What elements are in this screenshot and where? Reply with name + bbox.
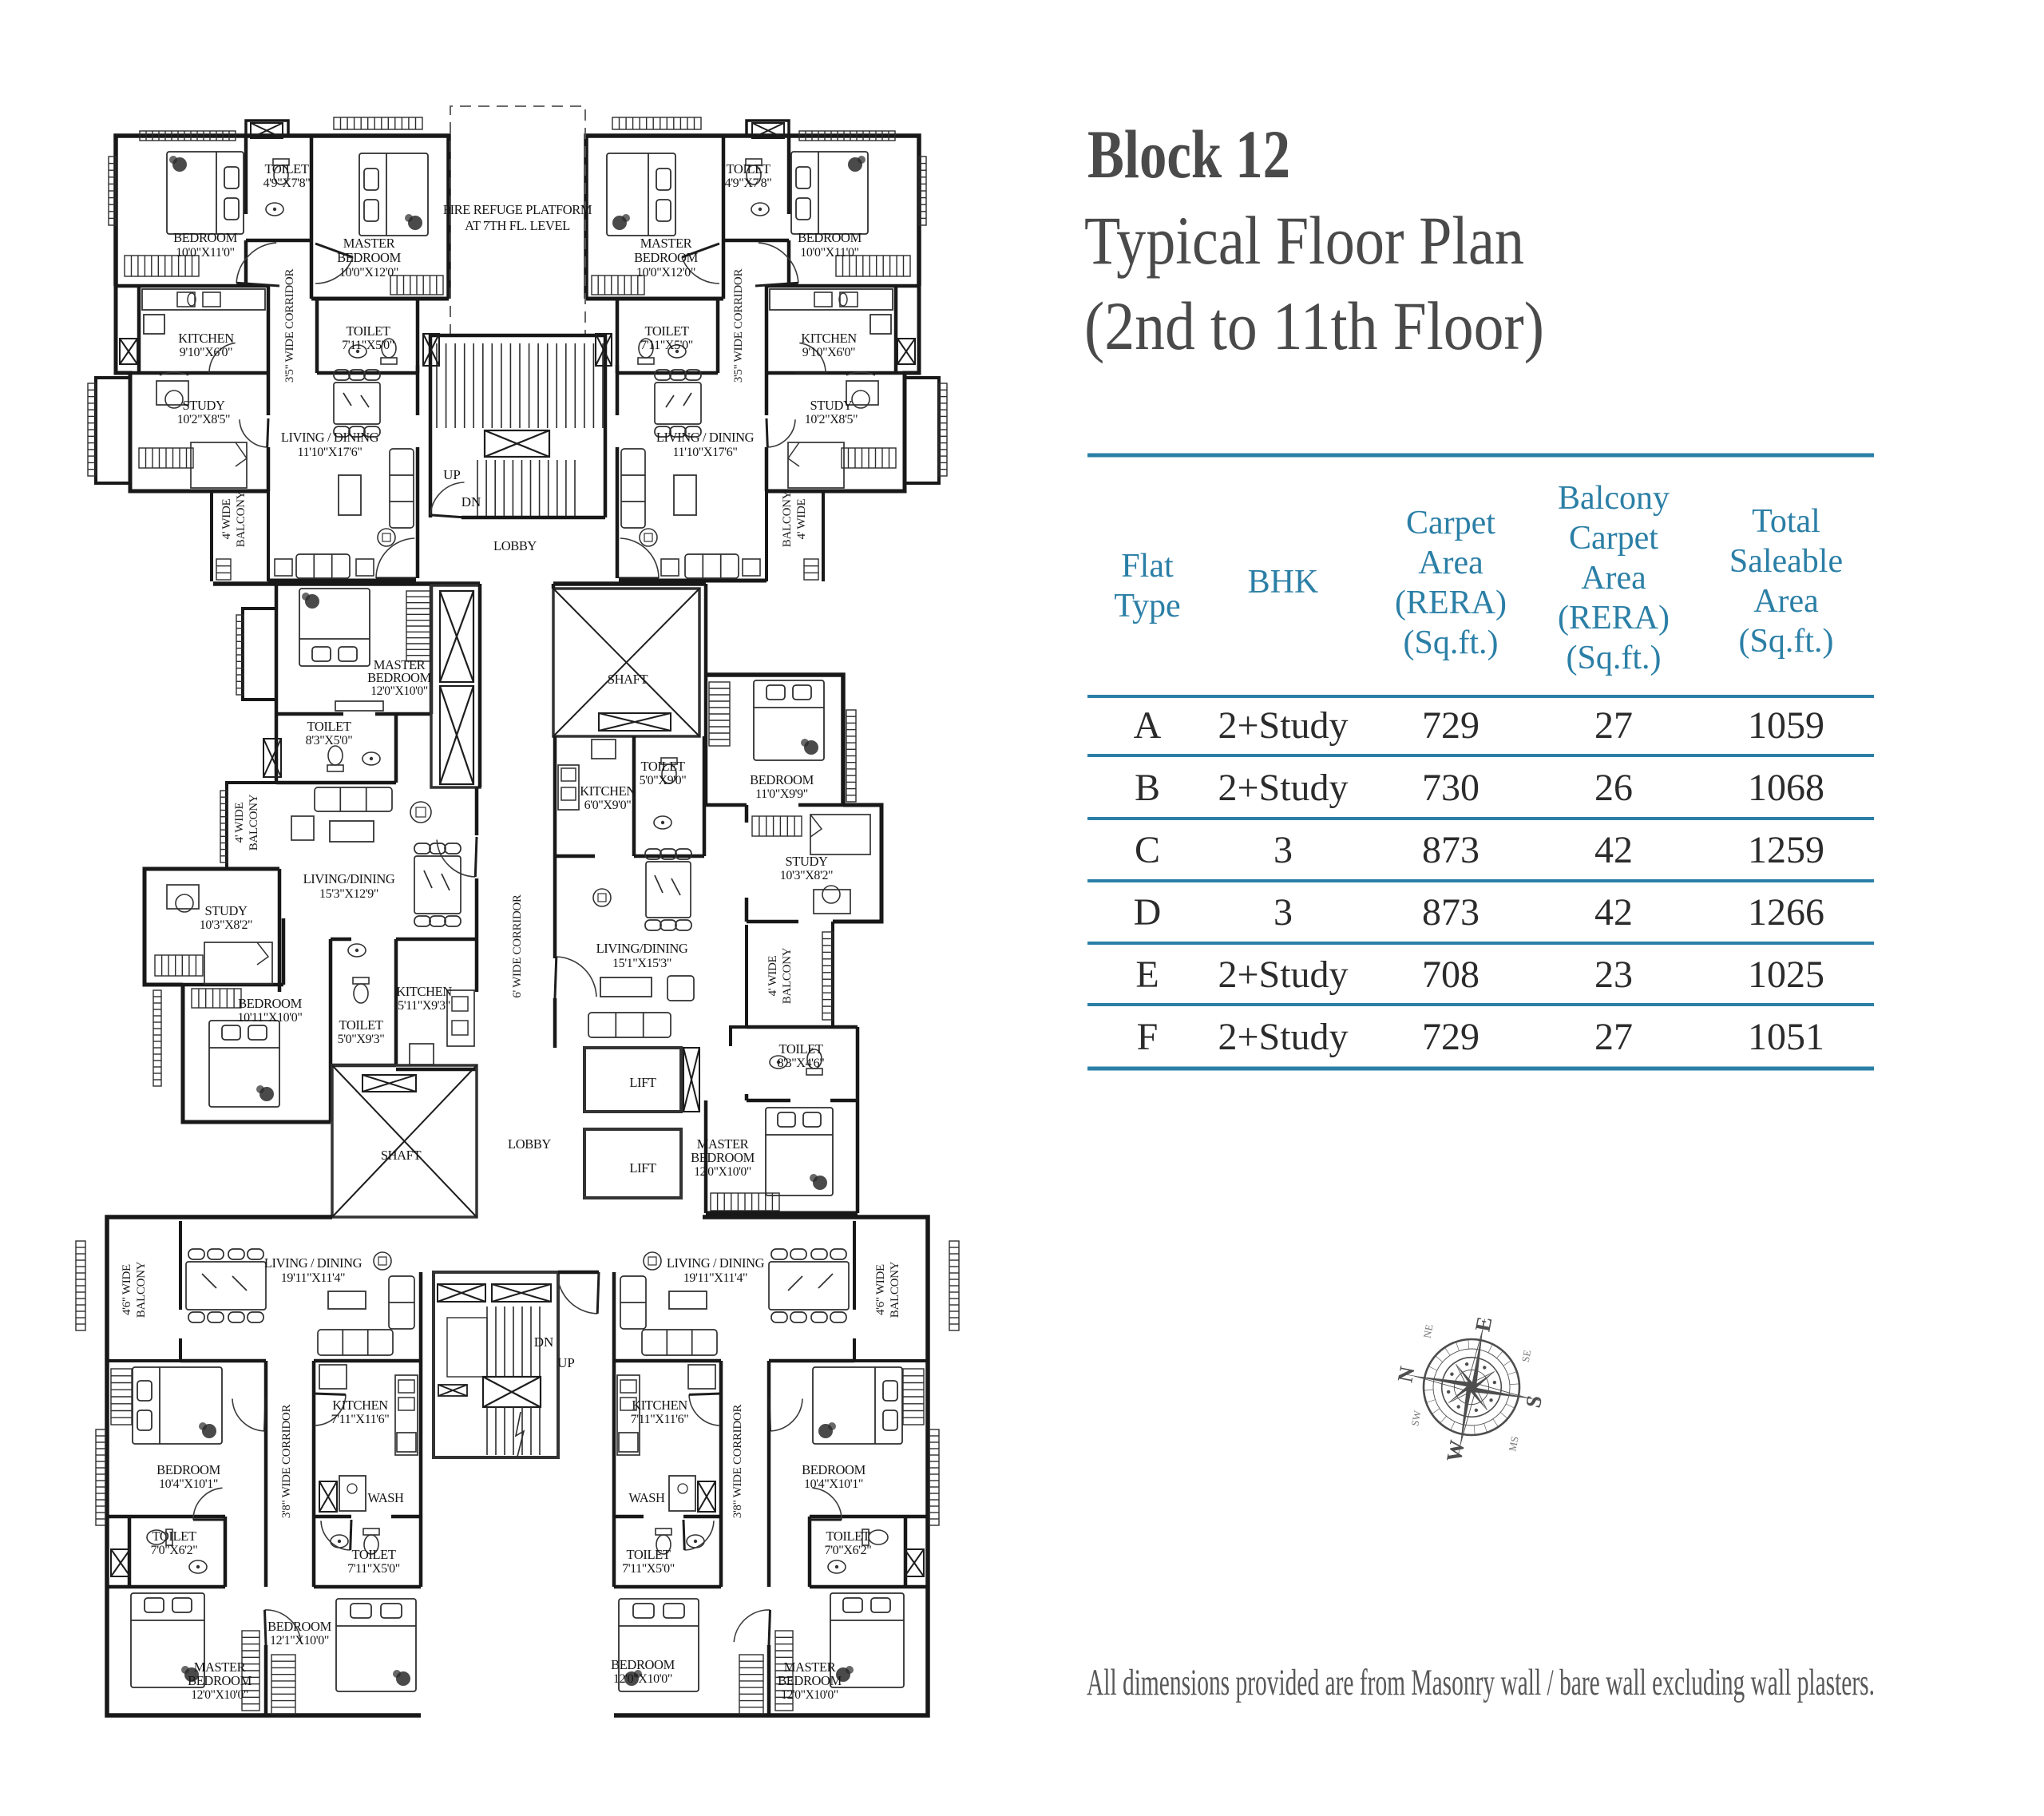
- svg-text:BEDROOM: BEDROOM: [691, 1150, 755, 1165]
- svg-text:9'10"X6'0": 9'10"X6'0": [802, 346, 855, 359]
- svg-text:3: 3: [1274, 891, 1293, 934]
- svg-text:4'9"X7'8": 4'9"X7'8": [263, 176, 311, 190]
- svg-text:TOILET: TOILET: [826, 1529, 869, 1544]
- svg-text:MASTER: MASTER: [343, 236, 395, 251]
- svg-text:(2nd to 11th Floor): (2nd to 11th Floor): [1084, 287, 1544, 364]
- svg-text:4' WIDE: 4' WIDE: [233, 803, 246, 843]
- svg-text:TOILET: TOILET: [264, 161, 308, 176]
- svg-text:3'5" WIDE CORRIDOR: 3'5" WIDE CORRIDOR: [732, 269, 745, 383]
- svg-text:DN: DN: [534, 1334, 554, 1350]
- svg-text:10'3"X8'2": 10'3"X8'2": [200, 918, 252, 932]
- svg-text:42: 42: [1594, 829, 1633, 871]
- svg-text:LIVING / DINING: LIVING / DINING: [264, 1255, 362, 1271]
- svg-text:TOILET: TOILET: [644, 323, 688, 339]
- svg-text:708: 708: [1422, 954, 1480, 996]
- svg-text:MASTER: MASTER: [640, 236, 692, 251]
- svg-text:19'11"X11'4": 19'11"X11'4": [281, 1271, 345, 1285]
- svg-text:7'11"X5'0": 7'11"X5'0": [640, 339, 693, 352]
- svg-text:3'8" WIDE CORRIDOR: 3'8" WIDE CORRIDOR: [731, 1405, 744, 1519]
- svg-text:LIVING / DINING: LIVING / DINING: [656, 430, 755, 445]
- svg-text:1068: 1068: [1748, 767, 1824, 809]
- svg-text:TOILET: TOILET: [626, 1547, 670, 1562]
- svg-text:BALCONY: BALCONY: [135, 1261, 148, 1318]
- svg-text:STUDY: STUDY: [785, 854, 827, 869]
- svg-text:1266: 1266: [1748, 891, 1824, 934]
- svg-text:8'3"X5'0": 8'3"X5'0": [306, 734, 353, 747]
- svg-text:10'0"X11'0": 10'0"X11'0": [176, 246, 234, 260]
- svg-text:6'0"X9'0": 6'0"X9'0": [584, 799, 632, 812]
- svg-text:12'0"X10'0": 12'0"X10'0": [613, 1672, 672, 1686]
- svg-text:BALCONY: BALCONY: [781, 490, 794, 547]
- svg-text:KITCHEN: KITCHEN: [396, 984, 452, 999]
- svg-text:7'11"X5'0": 7'11"X5'0": [342, 339, 394, 352]
- svg-text:1051: 1051: [1748, 1016, 1824, 1058]
- svg-text:TOILET: TOILET: [307, 719, 351, 734]
- svg-text:873: 873: [1422, 891, 1480, 934]
- svg-text:C: C: [1135, 829, 1160, 871]
- svg-text:7'0"X6'2": 7'0"X6'2": [151, 1544, 198, 1557]
- svg-text:3'5" WIDE CORRIDOR: 3'5" WIDE CORRIDOR: [283, 269, 296, 383]
- svg-text:LIFT: LIFT: [629, 1160, 656, 1176]
- svg-text:10'0"X12'0": 10'0"X12'0": [636, 266, 695, 280]
- svg-text:4'6" WIDE: 4'6" WIDE: [874, 1264, 887, 1315]
- svg-text:BALCONY: BALCONY: [889, 1261, 901, 1318]
- svg-text:4' WIDE: 4' WIDE: [220, 499, 233, 540]
- svg-text:4' WIDE: 4' WIDE: [766, 956, 779, 997]
- svg-text:27: 27: [1594, 704, 1633, 747]
- svg-text:BEDROOM: BEDROOM: [802, 1462, 866, 1477]
- svg-text:BEDROOM: BEDROOM: [337, 250, 401, 265]
- svg-text:12'1"X10'0": 12'1"X10'0": [270, 1634, 329, 1647]
- svg-text:TOILET: TOILET: [640, 759, 684, 774]
- svg-text:TOILET: TOILET: [152, 1529, 196, 1544]
- svg-text:All dimensions provided are fr: All dimensions provided are from Masonry…: [1087, 1662, 1875, 1703]
- svg-text:8'3"X4'6": 8'3"X4'6": [778, 1057, 825, 1070]
- svg-text:UP: UP: [557, 1355, 575, 1370]
- svg-text:2+Study: 2+Study: [1218, 954, 1348, 996]
- svg-text:KITCHEN: KITCHEN: [580, 783, 636, 799]
- svg-text:TOILET: TOILET: [726, 161, 770, 176]
- svg-text:BEDROOM: BEDROOM: [188, 1673, 252, 1688]
- svg-text:7'11"X5'0": 7'11"X5'0": [622, 1562, 675, 1576]
- svg-text:23: 23: [1594, 954, 1633, 996]
- svg-text:1025: 1025: [1748, 954, 1824, 996]
- svg-text:BEDROOM: BEDROOM: [750, 772, 814, 787]
- svg-text:729: 729: [1422, 704, 1480, 747]
- svg-text:BEDROOM: BEDROOM: [611, 1657, 675, 1672]
- svg-text:12'0"X10'0": 12'0"X10'0": [694, 1165, 751, 1179]
- svg-text:10'2"X8'5": 10'2"X8'5": [805, 413, 858, 426]
- svg-text:7'11"X5'0": 7'11"X5'0": [347, 1562, 400, 1576]
- svg-text:KITCHEN: KITCHEN: [632, 1398, 687, 1413]
- svg-text:1059: 1059: [1748, 704, 1824, 747]
- svg-text:DN: DN: [461, 494, 481, 510]
- svg-text:5'0"X9'0": 5'0"X9'0": [640, 774, 687, 787]
- svg-text:BEDROOM: BEDROOM: [173, 230, 237, 245]
- svg-text:15'1"X15'3": 15'1"X15'3": [612, 957, 671, 970]
- svg-text:730: 730: [1422, 767, 1480, 809]
- svg-text:LIVING/DINING: LIVING/DINING: [303, 871, 395, 886]
- svg-text:11'0"X9'9": 11'0"X9'9": [755, 787, 808, 801]
- svg-text:LOBBY: LOBBY: [508, 1136, 551, 1152]
- svg-text:SHAFT: SHAFT: [381, 1148, 422, 1163]
- svg-text:10'11"X10'0": 10'11"X10'0": [238, 1011, 303, 1025]
- svg-text:AT 7TH FL. LEVEL: AT 7TH FL. LEVEL: [465, 218, 570, 233]
- svg-text:W: W: [1442, 1438, 1470, 1464]
- svg-text:UP: UP: [443, 467, 461, 482]
- svg-text:4'9"X7'8": 4'9"X7'8": [725, 176, 772, 190]
- svg-text:11'10"X17'6": 11'10"X17'6": [298, 446, 362, 459]
- svg-text:BEDROOM: BEDROOM: [798, 230, 862, 245]
- svg-text:STUDY: STUDY: [182, 398, 224, 413]
- svg-text:3'8" WIDE CORRIDOR: 3'8" WIDE CORRIDOR: [280, 1405, 293, 1519]
- svg-text:4' WIDE: 4' WIDE: [795, 499, 808, 540]
- svg-text:Typical Floor Plan: Typical Floor Plan: [1084, 202, 1524, 279]
- svg-text:26: 26: [1594, 767, 1633, 809]
- svg-text:15'3"X12'9": 15'3"X12'9": [319, 887, 378, 901]
- svg-text:12'0"X10'0": 12'0"X10'0": [370, 684, 428, 698]
- svg-text:7'0"X6'2": 7'0"X6'2": [825, 1544, 872, 1557]
- svg-text:12'0"X10'0": 12'0"X10'0": [191, 1688, 248, 1702]
- svg-text:42: 42: [1594, 891, 1633, 934]
- svg-text:SE: SE: [1519, 1349, 1534, 1363]
- svg-text:7'11"X11'6": 7'11"X11'6": [631, 1413, 689, 1426]
- svg-text:LIVING/DINING: LIVING/DINING: [596, 941, 688, 956]
- svg-text:FIRE REFUGE PLATFORM: FIRE REFUGE PLATFORM: [443, 202, 592, 217]
- svg-text:STUDY: STUDY: [810, 398, 852, 413]
- svg-text:873: 873: [1422, 829, 1480, 871]
- svg-text:10'2"X8'5": 10'2"X8'5": [177, 413, 230, 426]
- svg-text:A: A: [1134, 704, 1162, 747]
- svg-text:3: 3: [1274, 829, 1293, 871]
- svg-text:B: B: [1135, 767, 1160, 809]
- svg-text:5'0"X9'3": 5'0"X9'3": [338, 1033, 385, 1046]
- svg-text:1259: 1259: [1748, 829, 1824, 871]
- svg-text:WASH: WASH: [628, 1490, 665, 1505]
- svg-text:F: F: [1137, 1016, 1159, 1058]
- svg-text:BEDROOM: BEDROOM: [778, 1673, 842, 1688]
- svg-text:10'0"X11'0": 10'0"X11'0": [800, 246, 858, 260]
- svg-text:BEDROOM: BEDROOM: [367, 670, 431, 685]
- svg-text:10'4"X10'1": 10'4"X10'1": [804, 1477, 863, 1491]
- svg-text:TOILET: TOILET: [778, 1041, 822, 1057]
- svg-text:LIFT: LIFT: [629, 1075, 656, 1090]
- svg-text:D: D: [1134, 891, 1162, 934]
- svg-text:4'6" WIDE: 4'6" WIDE: [121, 1264, 133, 1315]
- svg-text:KITCHEN: KITCHEN: [178, 331, 234, 346]
- svg-text:LIVING / DINING: LIVING / DINING: [667, 1255, 765, 1271]
- svg-text:BALCONY: BALCONY: [781, 947, 794, 1004]
- svg-text:LIVING / DINING: LIVING / DINING: [281, 430, 379, 445]
- svg-text:Block 12: Block 12: [1087, 116, 1290, 192]
- svg-text:LOBBY: LOBBY: [493, 538, 537, 553]
- svg-text:STUDY: STUDY: [204, 903, 247, 918]
- svg-text:2+Study: 2+Study: [1218, 767, 1348, 809]
- svg-text:10'4"X10'1": 10'4"X10'1": [159, 1477, 218, 1491]
- svg-text:WASH: WASH: [367, 1490, 404, 1505]
- svg-text:SHAFT: SHAFT: [608, 672, 648, 687]
- svg-text:KITCHEN: KITCHEN: [332, 1398, 388, 1413]
- svg-text:6' WIDE CORRIDOR: 6' WIDE CORRIDOR: [511, 894, 524, 998]
- svg-text:TOILET: TOILET: [351, 1547, 395, 1562]
- svg-text:10'3"X8'2": 10'3"X8'2": [780, 869, 833, 882]
- svg-text:BALCONY: BALCONY: [235, 490, 248, 547]
- svg-text:KITCHEN: KITCHEN: [801, 331, 857, 346]
- svg-text:BEDROOM: BEDROOM: [267, 1619, 331, 1634]
- svg-text:BEDROOM: BEDROOM: [634, 250, 698, 265]
- svg-text:BEDROOM: BEDROOM: [156, 1462, 220, 1477]
- svg-text:BHK: BHK: [1248, 564, 1319, 601]
- svg-text:27: 27: [1594, 1016, 1633, 1058]
- svg-text:729: 729: [1422, 1016, 1480, 1058]
- svg-text:BALCONY: BALCONY: [248, 794, 260, 851]
- svg-text:11'10"X17'6": 11'10"X17'6": [673, 446, 738, 459]
- svg-text:12'0"X10'0": 12'0"X10'0": [781, 1688, 838, 1702]
- svg-text:19'11"X11'4": 19'11"X11'4": [683, 1271, 747, 1285]
- svg-text:2+Study: 2+Study: [1218, 704, 1348, 747]
- svg-text:BEDROOM: BEDROOM: [238, 996, 302, 1011]
- svg-text:E: E: [1135, 954, 1159, 996]
- svg-text:2+Study: 2+Study: [1218, 1016, 1348, 1058]
- svg-text:7'11"X11'6": 7'11"X11'6": [331, 1413, 390, 1426]
- svg-text:9'10"X6'0": 9'10"X6'0": [180, 346, 232, 359]
- svg-text:10'0"X12'0": 10'0"X12'0": [339, 266, 398, 280]
- svg-text:TOILET: TOILET: [346, 323, 390, 339]
- svg-text:TOILET: TOILET: [339, 1017, 382, 1033]
- svg-text:5'11"X9'3": 5'11"X9'3": [398, 999, 450, 1013]
